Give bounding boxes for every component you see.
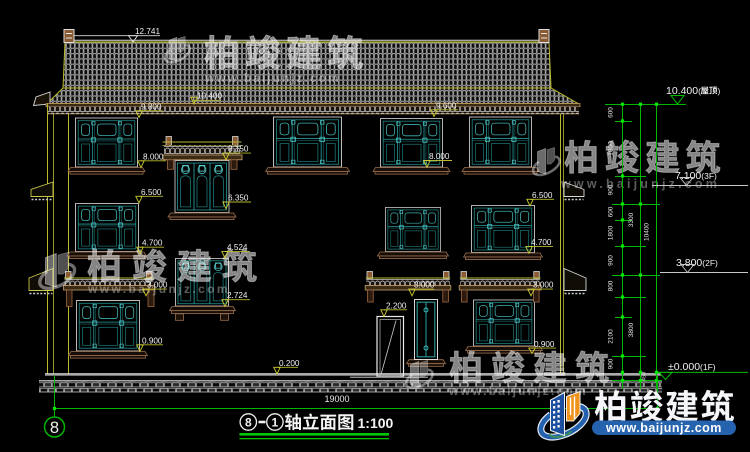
svg-text:www.baijunjz.com: www.baijunjz.com <box>605 421 722 435</box>
svg-text:9.800: 9.800 <box>141 102 162 111</box>
svg-text:2.724: 2.724 <box>227 291 248 300</box>
svg-text:8.000: 8.000 <box>143 152 164 161</box>
svg-text:7.100(3F): 7.100(3F) <box>675 170 717 182</box>
svg-text:0.900: 0.900 <box>142 336 163 345</box>
svg-text:900: 900 <box>608 255 615 266</box>
svg-text:0.200: 0.200 <box>279 359 300 368</box>
svg-text:4.524: 4.524 <box>227 243 248 252</box>
svg-text:19000: 19000 <box>324 394 349 404</box>
svg-text:10400: 10400 <box>644 223 651 241</box>
svg-text:2100: 2100 <box>608 329 615 344</box>
svg-text:450: 450 <box>642 372 648 381</box>
svg-text:3.800(2F): 3.800(2F) <box>676 257 718 269</box>
svg-text:8.150: 8.150 <box>228 145 249 154</box>
svg-text:600: 600 <box>608 107 615 118</box>
svg-text:900: 900 <box>608 358 615 369</box>
svg-text:3800: 3800 <box>628 322 635 337</box>
svg-text:8: 8 <box>50 419 59 437</box>
svg-text:6.500: 6.500 <box>532 191 553 200</box>
svg-text:800: 800 <box>608 280 615 291</box>
svg-text:6.350: 6.350 <box>228 194 249 203</box>
svg-text:): ) <box>718 86 721 96</box>
svg-text:3.000: 3.000 <box>147 281 168 290</box>
svg-text:4.700: 4.700 <box>531 238 552 247</box>
svg-text:±0.000(1F): ±0.000(1F) <box>668 361 716 373</box>
svg-text:3.000: 3.000 <box>533 281 554 290</box>
svg-text:1: 1 <box>272 415 279 429</box>
svg-text:10.400: 10.400 <box>197 92 222 101</box>
svg-text:4.700: 4.700 <box>142 239 163 248</box>
svg-text:12.741: 12.741 <box>135 27 160 36</box>
svg-text:1800: 1800 <box>608 225 615 240</box>
svg-text:3.000: 3.000 <box>414 281 435 290</box>
svg-text:600: 600 <box>608 206 615 217</box>
svg-text:900: 900 <box>608 184 615 195</box>
svg-text:www.baijunjz.com: www.baijunjz.com <box>204 71 341 85</box>
svg-text:8.000: 8.000 <box>429 152 450 161</box>
svg-text:9.600: 9.600 <box>436 101 457 110</box>
svg-text:2.200: 2.200 <box>386 301 407 310</box>
svg-text:6.500: 6.500 <box>141 188 162 197</box>
svg-text:1800: 1800 <box>608 141 615 156</box>
svg-text:0.900: 0.900 <box>534 340 555 349</box>
svg-text:8: 8 <box>245 415 252 429</box>
svg-text:3300: 3300 <box>628 212 635 227</box>
svg-text:1:100: 1:100 <box>358 415 394 431</box>
